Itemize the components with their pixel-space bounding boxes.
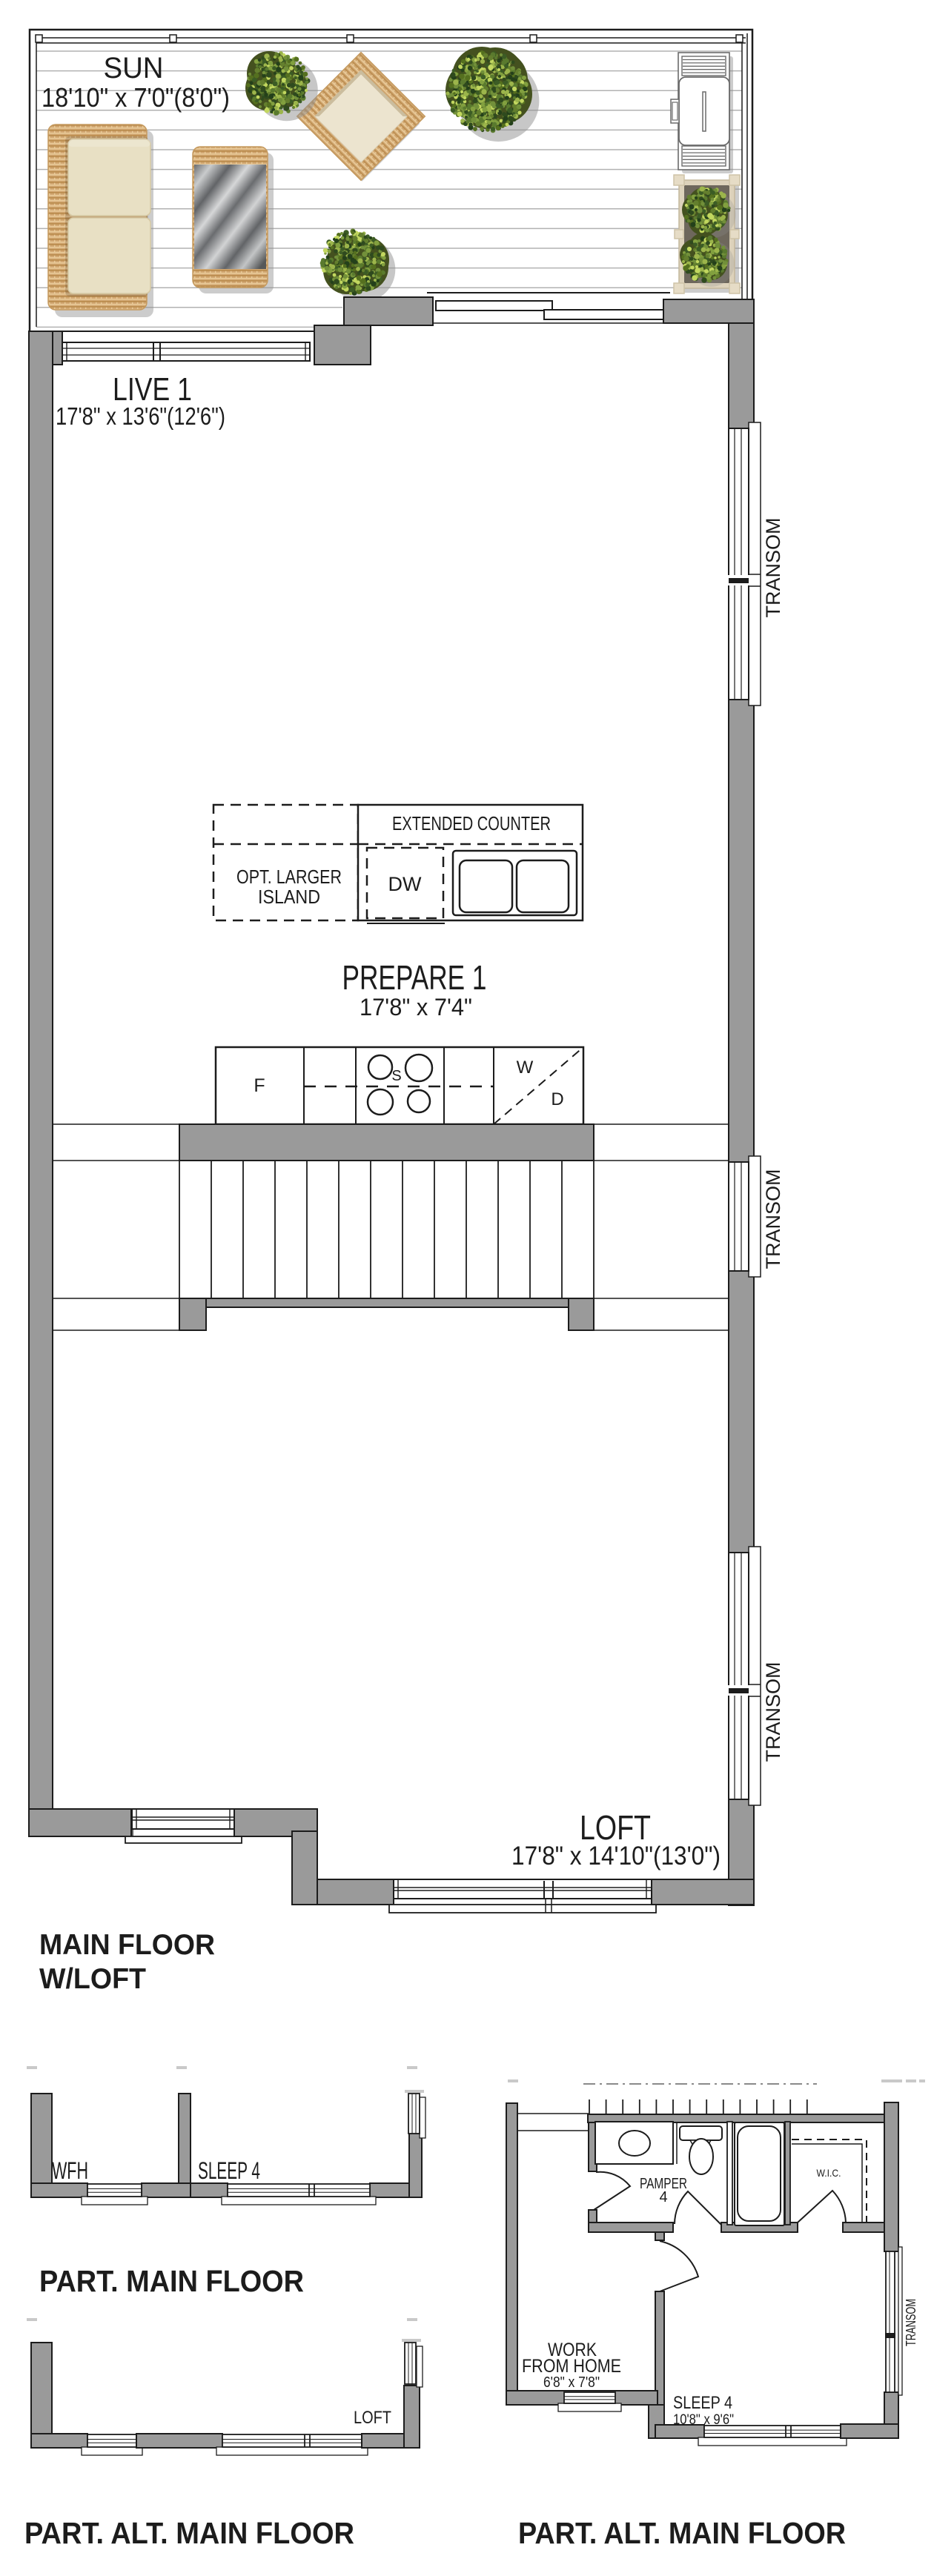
- svg-text:OPT. LARGER: OPT. LARGER: [236, 866, 342, 888]
- svg-text:FROM HOME: FROM HOME: [522, 2356, 621, 2377]
- svg-text:MAIN FLOOR: MAIN FLOOR: [39, 1929, 215, 1961]
- svg-text:TRANSOM: TRANSOM: [762, 518, 784, 618]
- svg-text:TRANSOM: TRANSOM: [762, 1169, 784, 1269]
- svg-text:SLEEP 4: SLEEP 4: [198, 2157, 260, 2184]
- svg-text:18'10" x 7'0"(8'0"): 18'10" x 7'0"(8'0"): [42, 82, 230, 113]
- svg-text:DW: DW: [388, 873, 422, 895]
- svg-text:4: 4: [659, 2189, 667, 2205]
- svg-text:17'8" x 14'10"(13'0"): 17'8" x 14'10"(13'0"): [511, 1842, 721, 1870]
- svg-text:17'8" x 7'4": 17'8" x 7'4": [360, 994, 472, 1020]
- svg-text:10'8" x 9'6": 10'8" x 9'6": [673, 2412, 734, 2428]
- svg-text:6'8" x 7'8": 6'8" x 7'8": [543, 2374, 600, 2391]
- svg-text:EXTENDED COUNTER: EXTENDED COUNTER: [392, 812, 551, 834]
- svg-text:D: D: [551, 1089, 563, 1109]
- svg-text:W/LOFT: W/LOFT: [39, 1963, 146, 1995]
- svg-text:WFH: WFH: [52, 2157, 88, 2184]
- svg-text:SLEEP 4: SLEEP 4: [673, 2393, 732, 2413]
- svg-text:PART. MAIN FLOOR: PART. MAIN FLOOR: [39, 2264, 304, 2298]
- svg-text:LOFT: LOFT: [354, 2408, 391, 2428]
- svg-text:ISLAND: ISLAND: [258, 886, 320, 908]
- svg-text:SUN: SUN: [104, 52, 164, 84]
- svg-text:TRANSOM: TRANSOM: [904, 2299, 918, 2346]
- svg-text:S: S: [391, 1068, 401, 1084]
- svg-text:PART. ALT. MAIN FLOOR: PART. ALT. MAIN FLOOR: [24, 2516, 354, 2550]
- svg-text:PREPARE 1: PREPARE 1: [342, 958, 487, 997]
- svg-text:PART. ALT. MAIN FLOOR: PART. ALT. MAIN FLOOR: [518, 2516, 846, 2550]
- svg-text:17'8" x 13'6"(12'6"): 17'8" x 13'6"(12'6"): [56, 402, 225, 430]
- svg-text:W.I.C.: W.I.C.: [817, 2167, 841, 2179]
- svg-text:W: W: [517, 1058, 534, 1078]
- svg-text:TRANSOM: TRANSOM: [762, 1662, 784, 1762]
- svg-text:F: F: [254, 1075, 265, 1096]
